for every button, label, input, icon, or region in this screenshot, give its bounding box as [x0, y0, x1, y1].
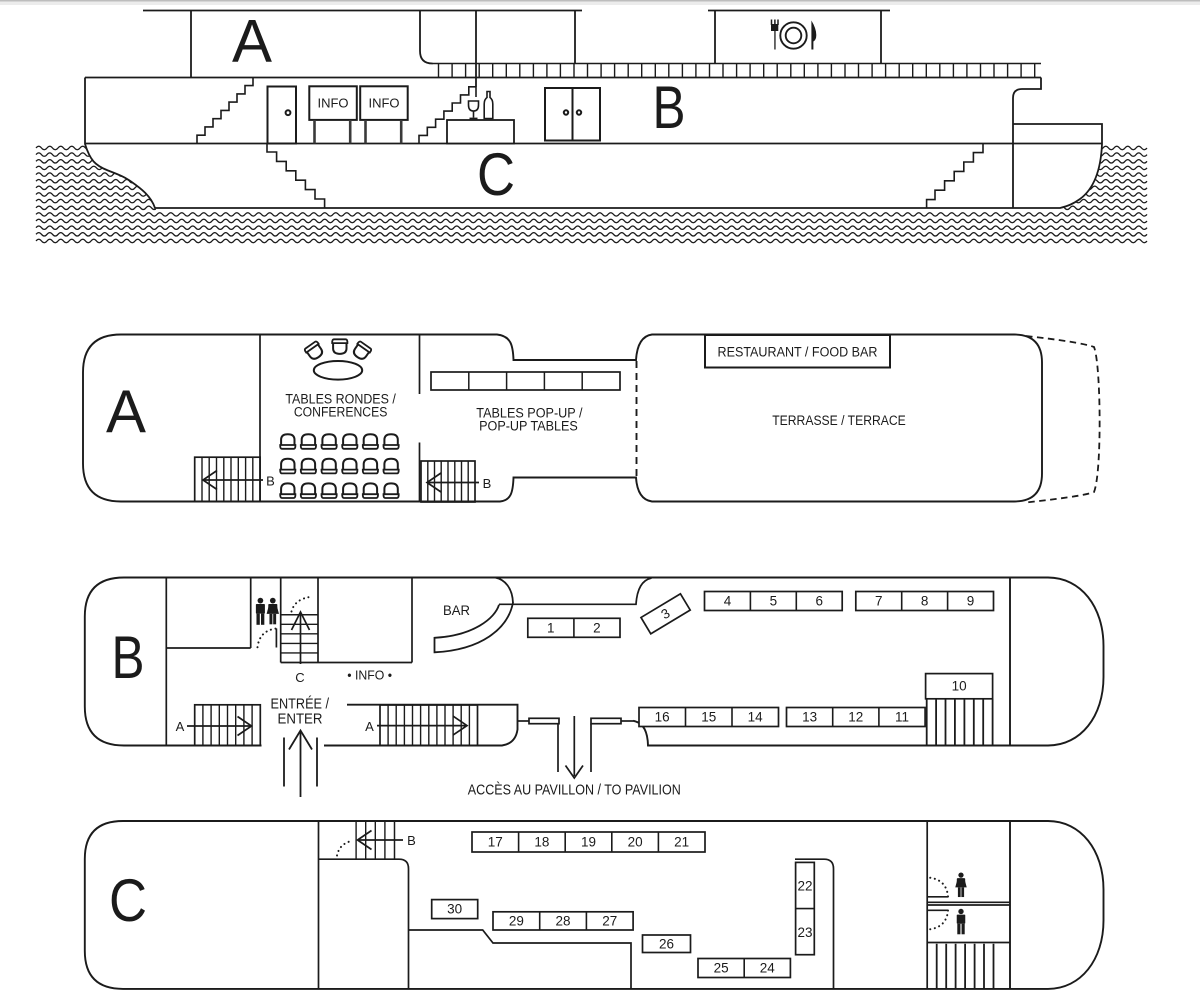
- svg-text:27: 27: [602, 913, 617, 928]
- svg-text:7: 7: [875, 594, 883, 609]
- svg-text:B: B: [483, 476, 492, 491]
- svg-text:POP-UP TABLES: POP-UP TABLES: [479, 419, 578, 434]
- svg-text:9: 9: [967, 594, 975, 609]
- svg-text:C: C: [109, 867, 147, 934]
- svg-text:12: 12: [848, 710, 863, 725]
- svg-text:TERRASSE / TERRACE: TERRASSE / TERRACE: [772, 413, 906, 428]
- svg-text:C: C: [295, 670, 304, 685]
- svg-text:25: 25: [714, 961, 729, 976]
- svg-text:ENTER: ENTER: [278, 712, 323, 728]
- svg-text:22: 22: [797, 878, 812, 893]
- svg-text:CONFERENCES: CONFERENCES: [294, 405, 388, 420]
- svg-text:RESTAURANT / FOOD BAR: RESTAURANT / FOOD BAR: [718, 345, 878, 360]
- svg-text:ACCÈS AU PAVILLON / TO PAVILIO: ACCÈS AU PAVILLON / TO PAVILION: [468, 782, 681, 799]
- svg-text:20: 20: [628, 835, 643, 850]
- svg-text:A: A: [106, 378, 146, 445]
- svg-text:ENTRÉE /: ENTRÉE /: [271, 696, 330, 713]
- svg-text:2: 2: [593, 620, 601, 635]
- svg-text:29: 29: [509, 913, 524, 928]
- svg-text:15: 15: [701, 710, 716, 725]
- svg-text:6: 6: [815, 594, 823, 609]
- svg-text:10: 10: [952, 679, 967, 694]
- svg-text:13: 13: [802, 710, 817, 725]
- svg-text:17: 17: [488, 835, 503, 850]
- svg-text:21: 21: [674, 835, 689, 850]
- svg-text:A: A: [232, 8, 272, 75]
- svg-text:BAR: BAR: [443, 603, 470, 618]
- svg-text:5: 5: [770, 594, 778, 609]
- svg-text:16: 16: [655, 710, 670, 725]
- svg-text:14: 14: [748, 710, 764, 725]
- svg-text:B: B: [266, 474, 275, 489]
- svg-text:11: 11: [895, 710, 909, 725]
- svg-text:28: 28: [555, 913, 570, 928]
- svg-text:19: 19: [581, 835, 596, 850]
- svg-text:B: B: [407, 833, 416, 848]
- svg-text:B: B: [112, 624, 145, 691]
- svg-text:18: 18: [534, 835, 549, 850]
- svg-text:C: C: [477, 141, 515, 208]
- svg-text:INFO: INFO: [317, 96, 348, 111]
- svg-text:INFO: INFO: [368, 96, 399, 111]
- svg-text:4: 4: [724, 594, 732, 609]
- svg-text:A: A: [176, 719, 185, 734]
- svg-text:1: 1: [547, 620, 555, 635]
- svg-text:A: A: [365, 719, 374, 734]
- svg-text:23: 23: [797, 925, 812, 940]
- svg-text:8: 8: [921, 594, 929, 609]
- svg-text:24: 24: [760, 961, 776, 976]
- svg-text:B: B: [653, 74, 686, 141]
- svg-text:• INFO •: • INFO •: [347, 668, 392, 683]
- svg-text:30: 30: [447, 902, 462, 917]
- svg-text:26: 26: [659, 936, 674, 951]
